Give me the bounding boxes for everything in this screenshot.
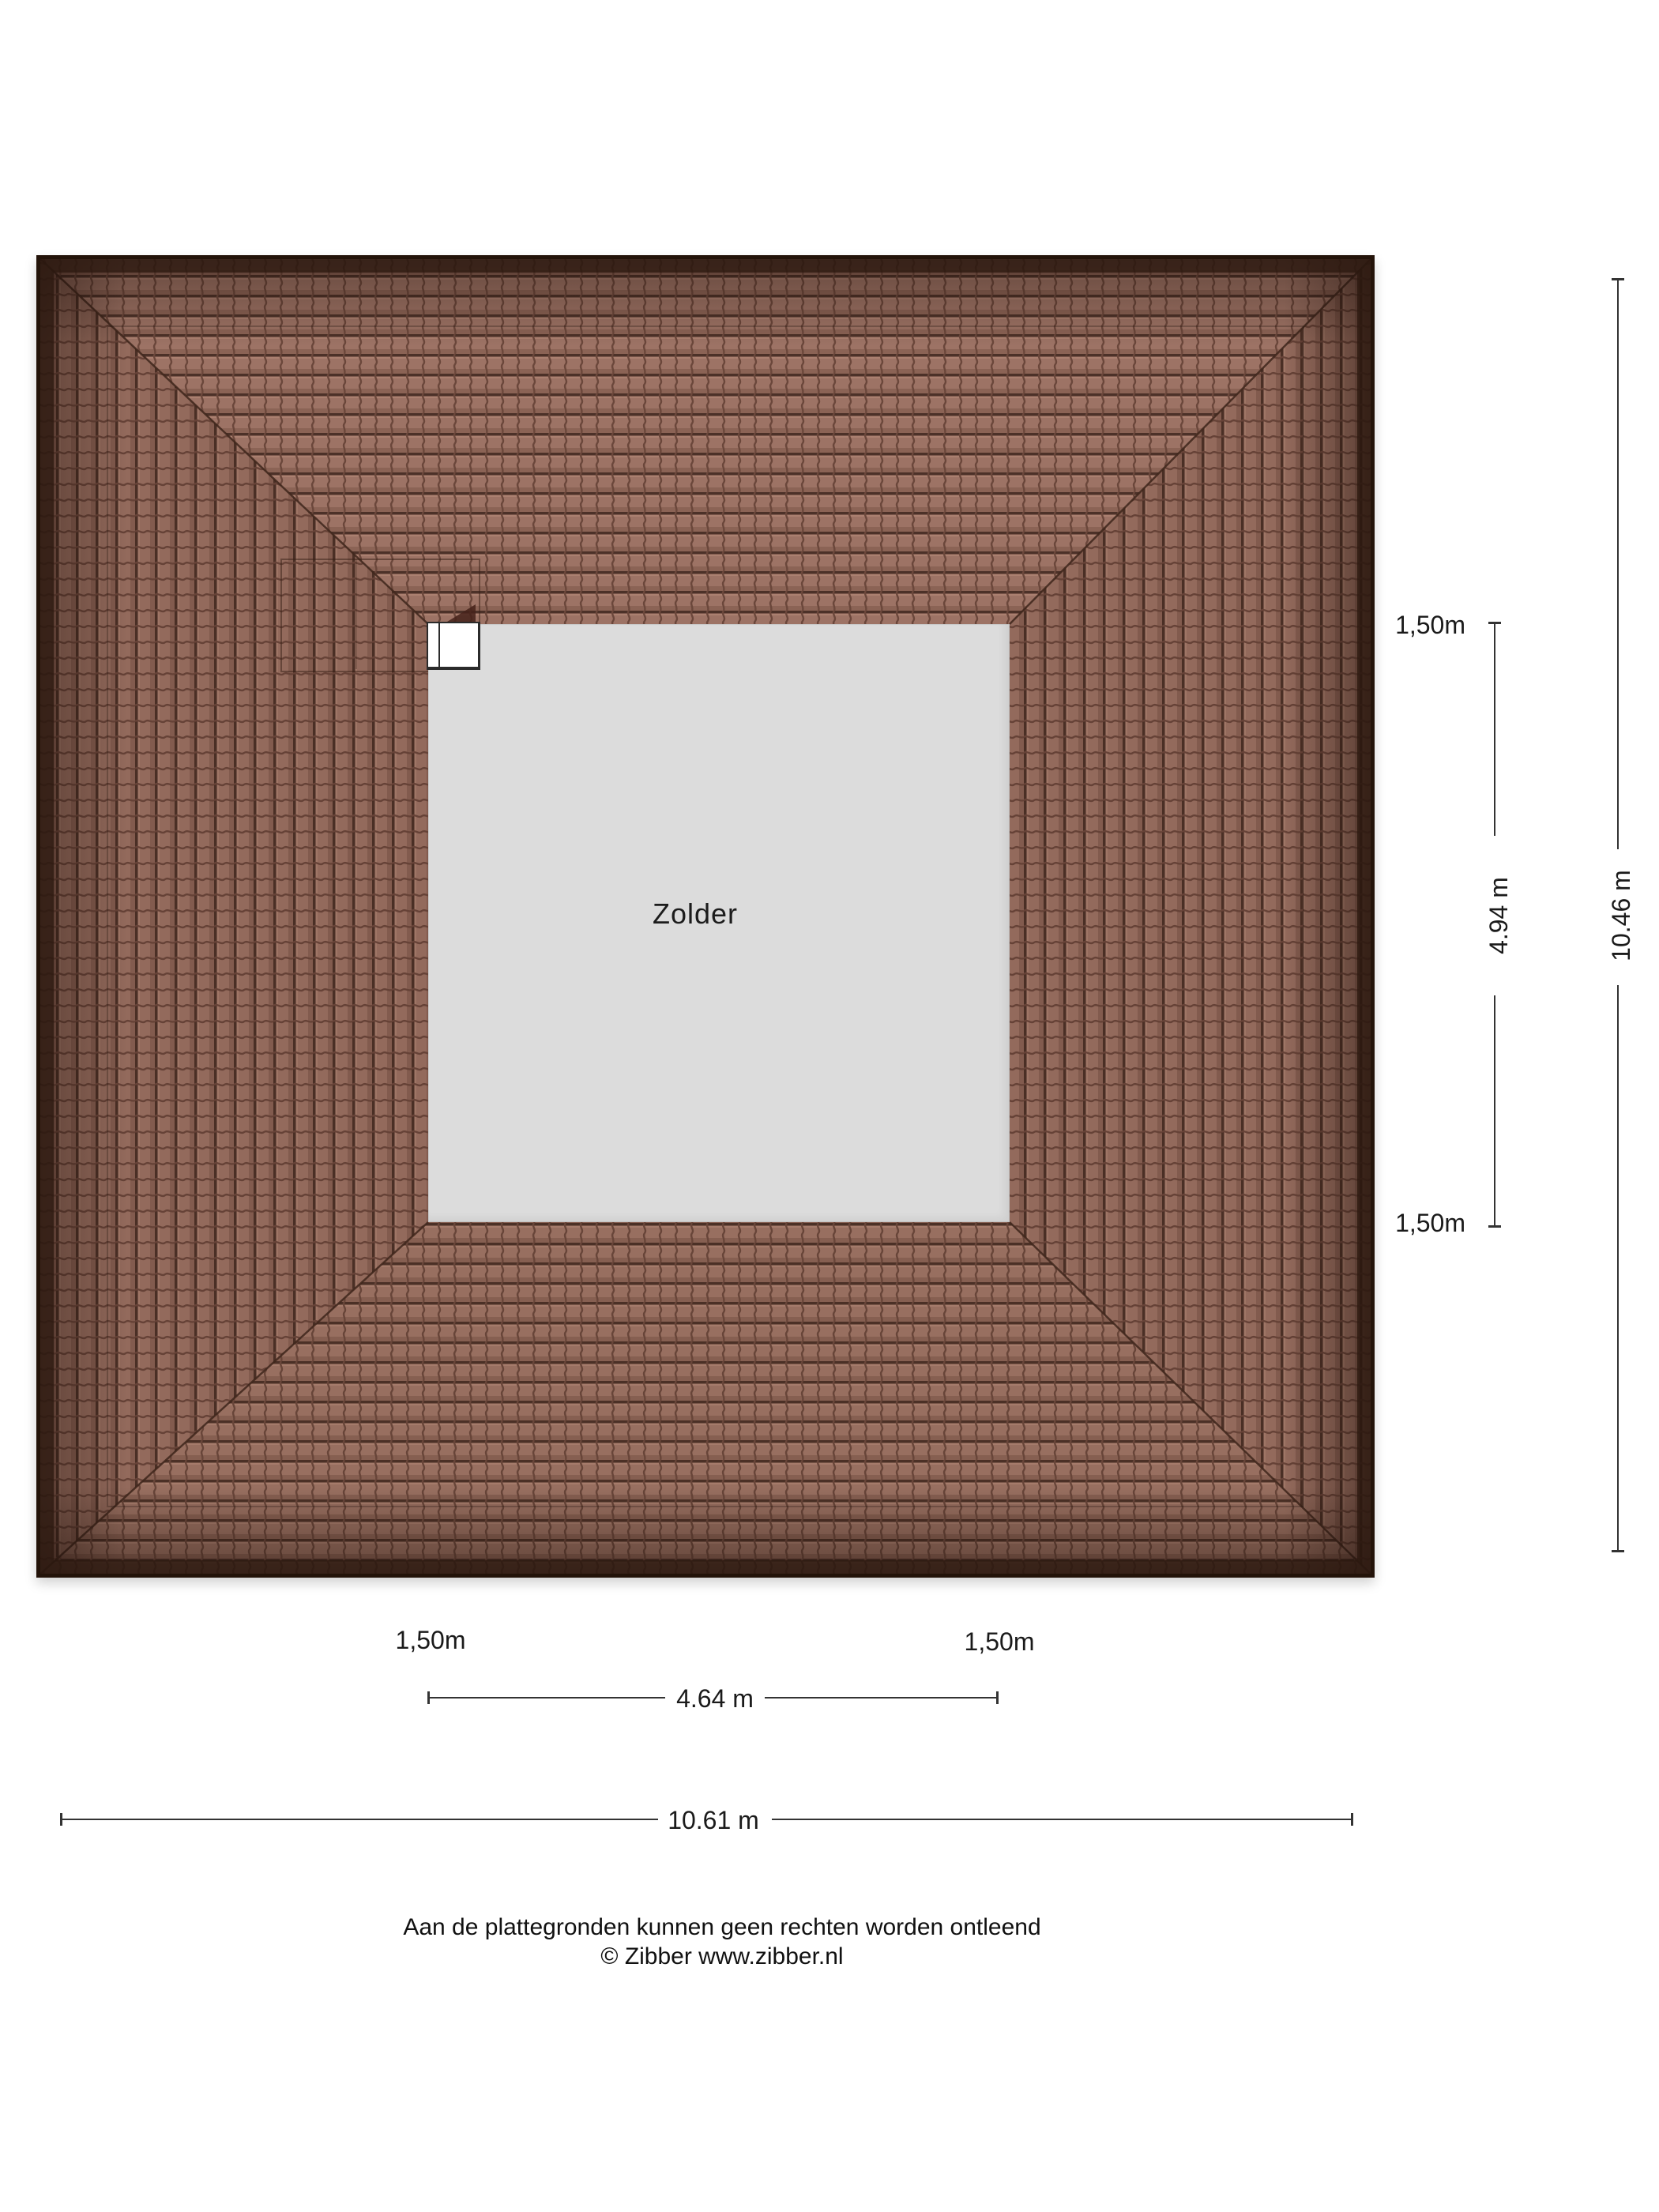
dormer-outline-divider [355, 559, 357, 669]
dim-tick [1488, 622, 1501, 624]
dim-line-span-right-lower [1494, 995, 1495, 1227]
skylight-window-divider [438, 623, 440, 667]
dim-line-span-right-upper [1494, 623, 1495, 836]
skylight-window-icon [427, 622, 480, 670]
dim-label-right-span: 4.94 m [1484, 848, 1514, 983]
floorplan-page: Zolder 1,50m 4.94 m 1,50m 10.46 m 1,50m … [0, 0, 1659, 2212]
dim-tick [1488, 1225, 1501, 1228]
dim-line-total-bottom-left [61, 1819, 658, 1820]
dim-label-bottom-span: 4.64 m [664, 1683, 766, 1714]
footer-disclaimer: Aan de plattegronden kunnen geen rechten… [36, 1913, 1408, 1942]
dim-line-total-bottom-right [772, 1819, 1352, 1820]
dim-label-right-offset-bottom: 1,50m [1382, 1208, 1465, 1238]
footer: Aan de plattegronden kunnen geen rechten… [36, 1913, 1408, 1971]
dim-label-bottom-offset-right: 1,50m [956, 1627, 1043, 1657]
footer-copyright: © Zibber www.zibber.nl [36, 1942, 1408, 1971]
dim-label-bottom-total: 10.61 m [654, 1805, 773, 1835]
dim-label-right-total: 10.46 m [1606, 841, 1636, 991]
dim-line-span-bottom-right [765, 1697, 998, 1698]
room-label: Zolder [404, 897, 986, 931]
dim-tick [1612, 1550, 1624, 1552]
dim-label-bottom-offset-left: 1,50m [387, 1625, 474, 1655]
dim-tick [427, 1691, 430, 1704]
dim-line-total-right-upper [1617, 279, 1619, 849]
dim-line-total-right-lower [1617, 985, 1619, 1552]
dim-tick [60, 1813, 62, 1826]
dim-line-span-bottom-left [428, 1697, 665, 1698]
dim-label-right-offset-top: 1,50m [1382, 610, 1465, 640]
dim-tick [1612, 278, 1624, 280]
dim-tick [1351, 1813, 1353, 1826]
dim-tick [996, 1691, 999, 1704]
